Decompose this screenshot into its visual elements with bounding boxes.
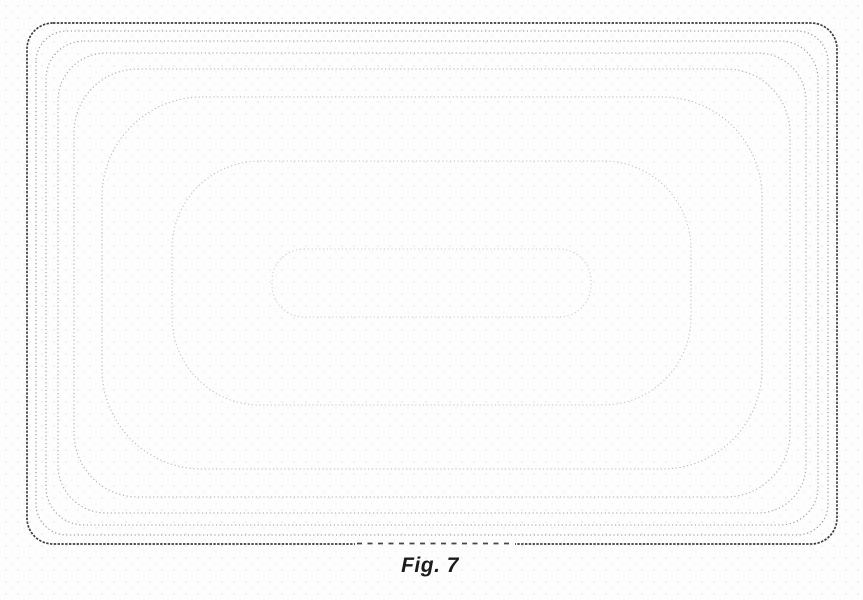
figure-caption: Fig. 7 xyxy=(401,554,459,578)
patent-page: Fig. 7 xyxy=(0,0,863,600)
contour-5 xyxy=(74,69,790,497)
contour-3 xyxy=(46,41,818,525)
contour-group xyxy=(27,23,837,548)
contour-1-outer xyxy=(27,23,837,544)
contour-6 xyxy=(102,97,762,469)
contour-8-inner xyxy=(272,249,591,317)
contour-7 xyxy=(172,161,691,405)
contour-4 xyxy=(58,53,806,513)
contour-2 xyxy=(36,31,828,535)
contour-drawing xyxy=(0,0,863,600)
